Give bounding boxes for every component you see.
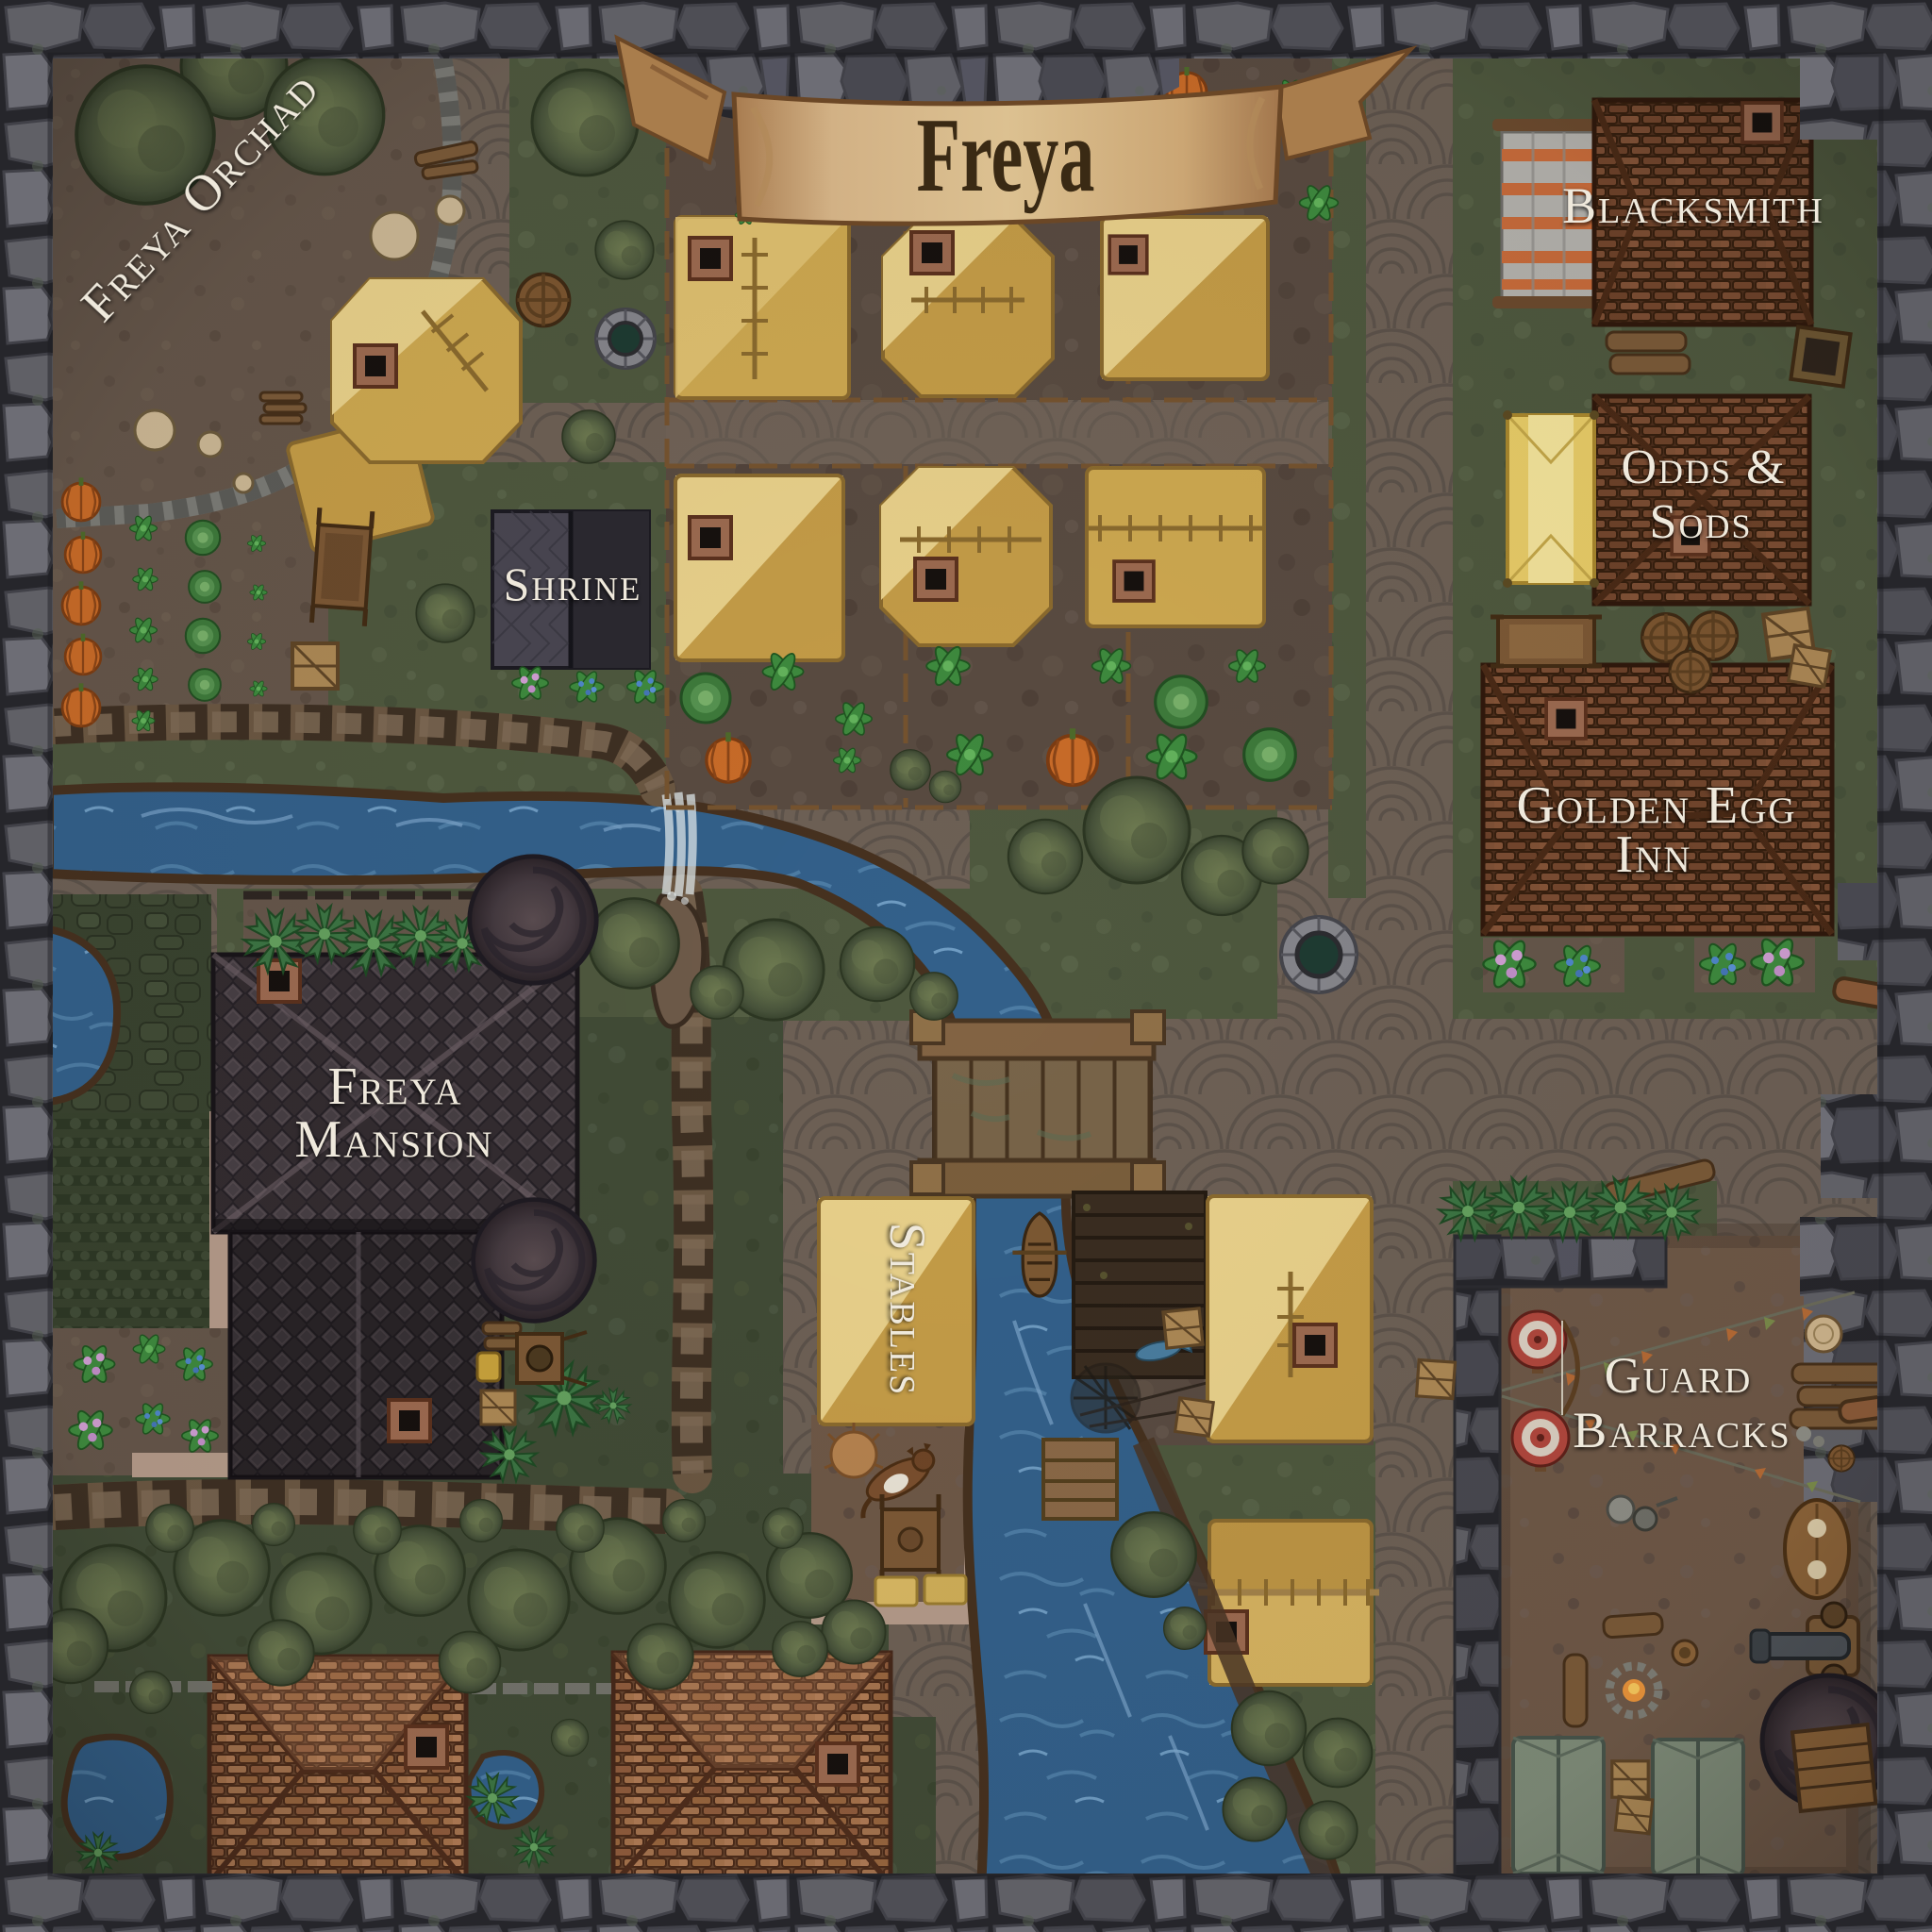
svg-text:Mansion: Mansion (294, 1110, 493, 1169)
svg-text:Sods: Sods (1650, 495, 1753, 549)
svg-text:Blacksmith: Blacksmith (1562, 177, 1824, 234)
svg-text:Inn: Inn (1616, 825, 1692, 884)
svg-text:Freya: Freya (328, 1058, 463, 1116)
svg-text:Shrine: Shrine (504, 558, 642, 610)
svg-text:Guard: Guard (1605, 1347, 1753, 1404)
svg-text:Odds &: Odds & (1621, 441, 1786, 494)
svg-text:Freya: Freya (917, 97, 1095, 214)
svg-text:Barracks: Barracks (1573, 1402, 1791, 1458)
svg-text:Stables: Stables (879, 1223, 936, 1397)
